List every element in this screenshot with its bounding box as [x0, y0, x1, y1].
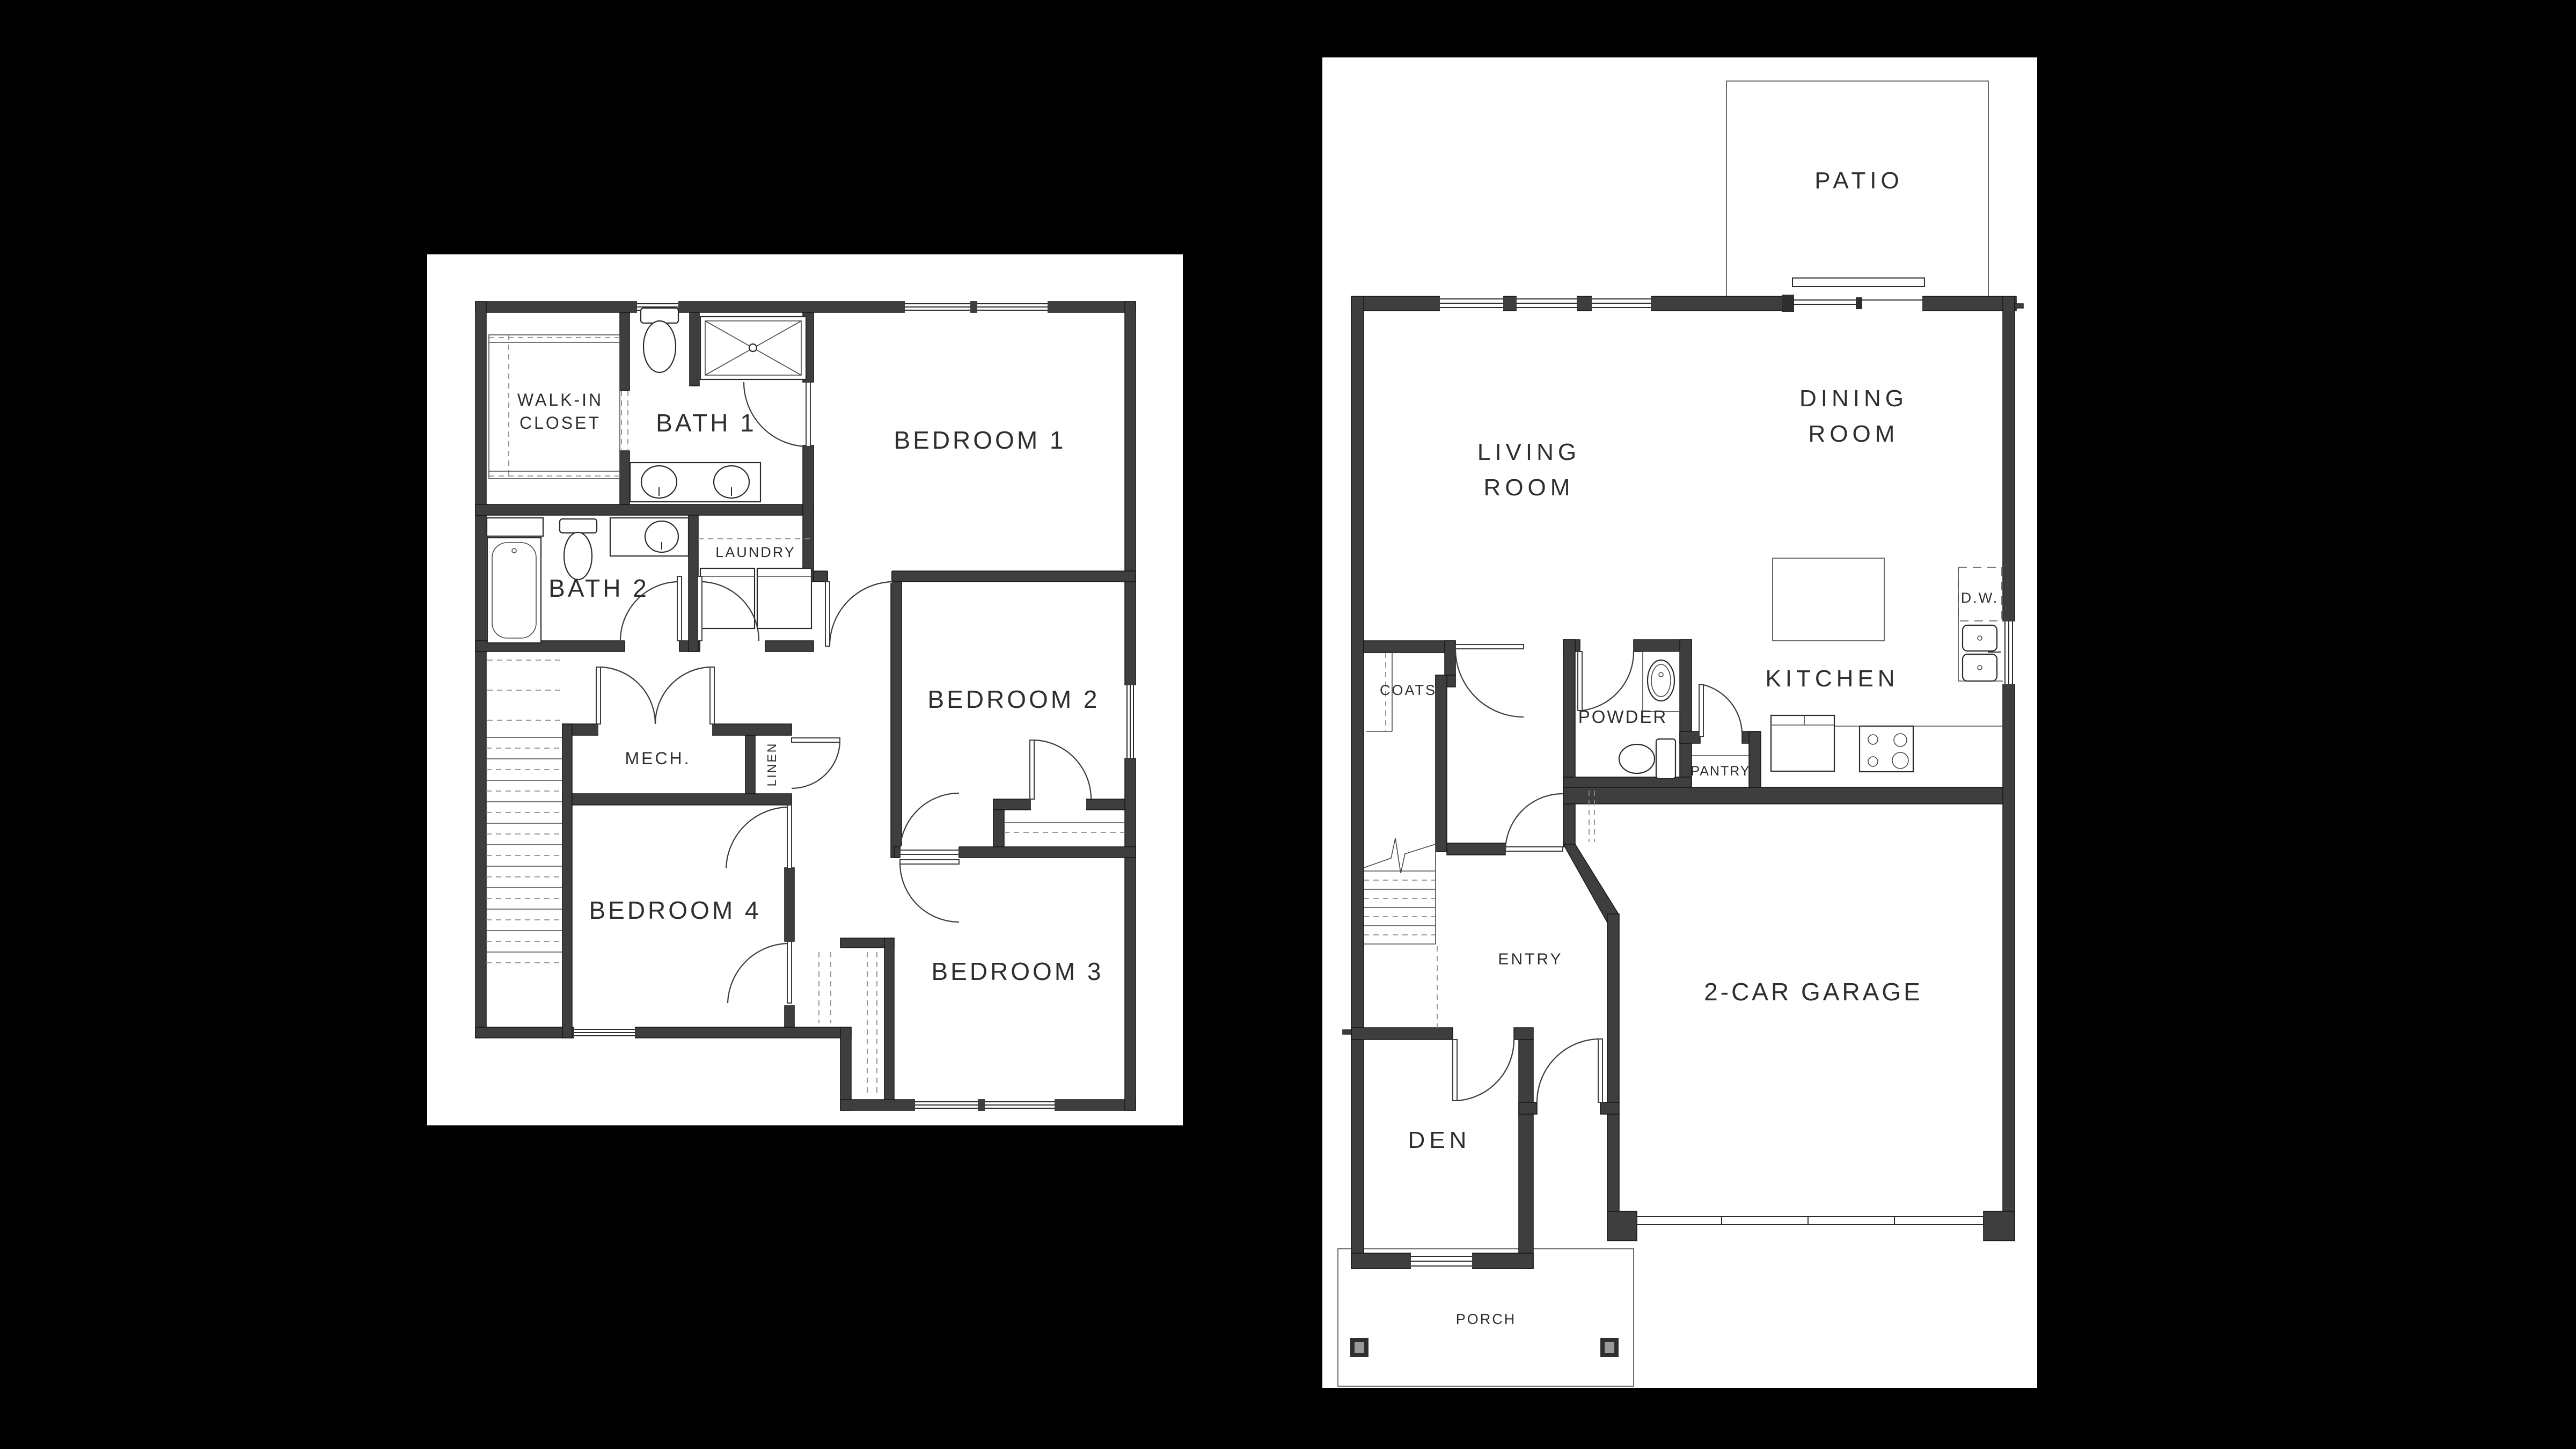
- window-kitchen-sink: [2002, 621, 2016, 684]
- sliding-glass-door: [1782, 278, 1924, 312]
- laundry-label: LAUNDRY: [715, 544, 796, 560]
- den-door: [1453, 1040, 1514, 1101]
- mech-double-door: [596, 667, 714, 724]
- garage-label: 2-CAR GARAGE: [1704, 978, 1923, 1006]
- pantry-door: [1699, 685, 1742, 736]
- coats-label: COATS: [1380, 682, 1437, 698]
- bedroom4-closet-bifold: [819, 952, 831, 1023]
- coats-door: [1455, 645, 1524, 717]
- bath2-label: BATH 2: [548, 574, 649, 602]
- washer-icon: [700, 568, 755, 628]
- walk-in-closet-label-2: CLOSET: [519, 413, 601, 433]
- wall-openings: [598, 570, 1086, 859]
- living-room-label-1: LIVING: [1477, 439, 1580, 465]
- bedroom1-label: BEDROOM 1: [894, 426, 1066, 454]
- window-den: [1411, 1252, 1472, 1270]
- powder-label: POWDER: [1578, 707, 1668, 727]
- stove-icon: [1860, 726, 1913, 772]
- porch-post: [1350, 1338, 1368, 1357]
- living-room-label-2: ROOM: [1484, 474, 1575, 501]
- bedroom2-closet-door: [1030, 740, 1091, 799]
- window-bedroom1-a: [905, 301, 970, 313]
- bedroom4-label: BEDROOM 4: [589, 896, 761, 924]
- toilet-icon: [1619, 739, 1675, 779]
- shower-icon: [700, 317, 806, 379]
- first-floor-panel: PATIO LIVING ROOM DINING ROOM D.W. KITCH…: [1322, 57, 2037, 1388]
- bedroom4-door: [726, 805, 792, 868]
- dining-room-label-1: DINING: [1799, 385, 1908, 412]
- pantry-label: PANTRY: [1690, 764, 1750, 779]
- stairs-icon: [486, 660, 562, 963]
- entry-label: ENTRY: [1498, 950, 1563, 968]
- refrigerator-icon: [1771, 715, 1834, 771]
- bath1-label: BATH 1: [656, 409, 757, 437]
- kitchen-hall-door: [1505, 794, 1563, 851]
- window-bedroom3-b: [985, 1099, 1055, 1111]
- kitchen-island: [1773, 558, 1884, 641]
- porch-post: [1600, 1338, 1619, 1357]
- bedroom4-closet-door: [728, 941, 792, 1003]
- mech-label: MECH.: [625, 749, 691, 768]
- powder-door: [1578, 652, 1634, 711]
- porch-label: PORCH: [1456, 1311, 1517, 1327]
- kitchen-sink-icon: [1963, 625, 2001, 681]
- window-living-b: [1517, 295, 1577, 312]
- garage-entry-door: [1537, 1039, 1602, 1102]
- window-bedroom2: [1124, 685, 1137, 758]
- dining-room-label-2: ROOM: [1809, 421, 1899, 447]
- second-floor-plan: WALK-IN CLOSET BATH 1 BEDROOM 1 BATH 2 L…: [427, 254, 1183, 1125]
- double-vanity-icon: [630, 463, 760, 502]
- patio-label: PATIO: [1814, 167, 1904, 194]
- den-label: DEN: [1408, 1127, 1471, 1153]
- toilet-icon: [641, 308, 678, 372]
- vanity-icon: [610, 518, 689, 556]
- bedroom3-door: [900, 860, 959, 922]
- stairs-icon: [1364, 791, 1594, 1028]
- bedroom3-closet-bifold: [867, 952, 877, 1095]
- second-floor-panel: WALK-IN CLOSET BATH 1 BEDROOM 1 BATH 2 L…: [427, 254, 1183, 1125]
- garage-door: [1637, 1217, 1984, 1225]
- window-living-c: [1592, 295, 1651, 312]
- dw-label: D.W.: [1961, 590, 1999, 606]
- walk-in-closet-label-1: WALK-IN: [517, 390, 603, 409]
- window-bedroom1-b: [977, 301, 1048, 313]
- dryer-icon: [757, 568, 811, 628]
- window-bedroom3-a: [915, 1099, 978, 1111]
- window-bedroom4: [574, 1026, 635, 1039]
- bedroom2-door: [900, 793, 959, 854]
- first-floor-plan: PATIO LIVING ROOM DINING ROOM D.W. KITCH…: [1322, 57, 2037, 1388]
- walls: [1343, 296, 2023, 1269]
- toilet-icon: [560, 519, 597, 580]
- bath1-fixtures: [630, 308, 806, 502]
- kitchen-label: KITCHEN: [1765, 665, 1899, 692]
- bathtub-icon: [487, 538, 541, 643]
- linen-label: LINEN: [765, 742, 779, 787]
- bedroom2-label: BEDROOM 2: [927, 685, 1100, 713]
- window-living-a: [1440, 295, 1503, 312]
- bedroom1-door: [825, 582, 892, 646]
- kitchen-fixtures: [1692, 558, 2003, 772]
- bedroom2-closet-shelf: [1004, 823, 1125, 832]
- bedroom3-label: BEDROOM 3: [931, 957, 1103, 985]
- linen-door: [792, 738, 840, 788]
